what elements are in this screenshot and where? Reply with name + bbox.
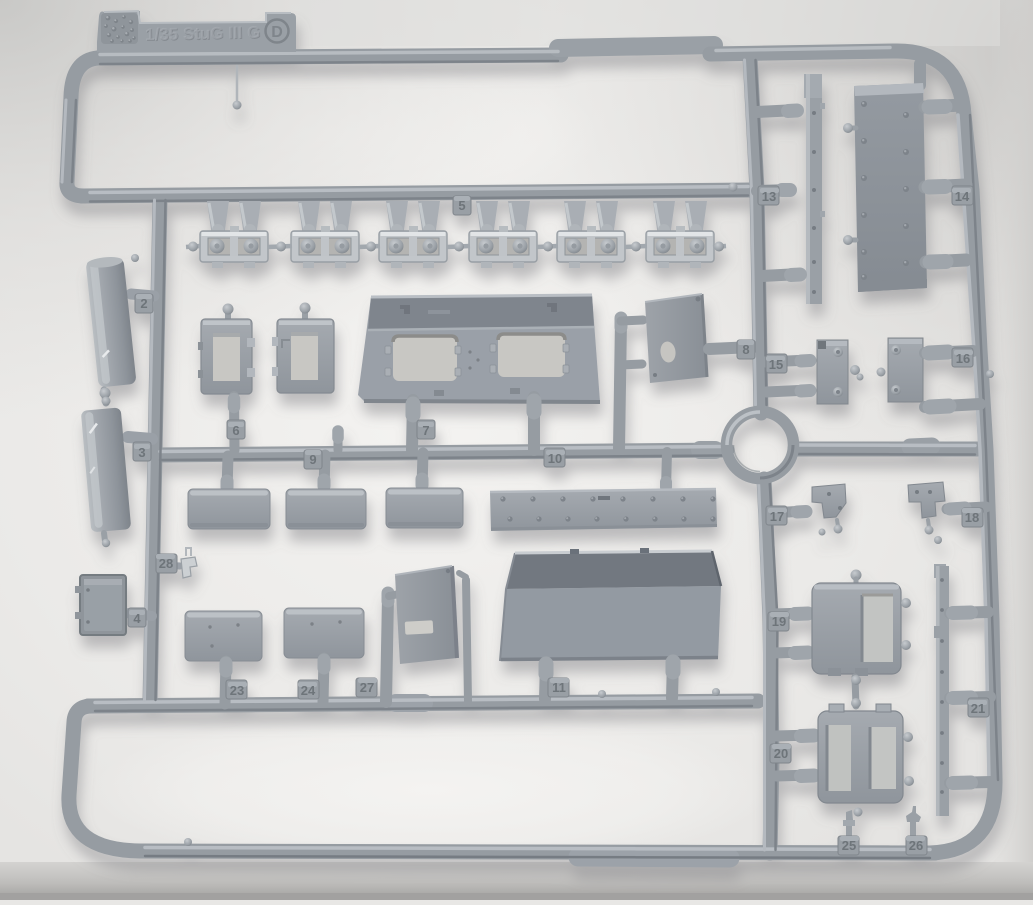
svg-text:11: 11 — [552, 680, 566, 695]
svg-text:7: 7 — [422, 423, 429, 438]
svg-text:5: 5 — [458, 198, 465, 213]
svg-text:1/35 StuG III G: 1/35 StuG III G — [145, 23, 261, 44]
svg-text:6: 6 — [232, 423, 239, 438]
svg-text:13: 13 — [762, 189, 776, 204]
svg-text:28: 28 — [159, 556, 173, 571]
svg-text:4: 4 — [133, 611, 141, 626]
svg-text:27: 27 — [360, 680, 374, 695]
svg-text:D: D — [271, 24, 283, 41]
svg-text:16: 16 — [956, 351, 970, 366]
svg-text:18: 18 — [965, 510, 979, 525]
svg-text:14: 14 — [955, 189, 970, 204]
svg-text:26: 26 — [909, 838, 923, 853]
svg-text:19: 19 — [772, 614, 786, 629]
svg-text:3: 3 — [138, 445, 145, 460]
svg-text:25: 25 — [842, 838, 856, 853]
svg-text:15: 15 — [769, 357, 783, 372]
svg-text:24: 24 — [301, 683, 316, 698]
svg-text:21: 21 — [971, 701, 985, 716]
svg-text:20: 20 — [774, 746, 788, 761]
svg-text:10: 10 — [548, 451, 562, 466]
svg-text:17: 17 — [770, 509, 784, 524]
svg-text:8: 8 — [742, 342, 749, 357]
svg-text:9: 9 — [309, 452, 316, 467]
svg-text:23: 23 — [230, 683, 244, 698]
svg-text:2: 2 — [140, 296, 147, 311]
